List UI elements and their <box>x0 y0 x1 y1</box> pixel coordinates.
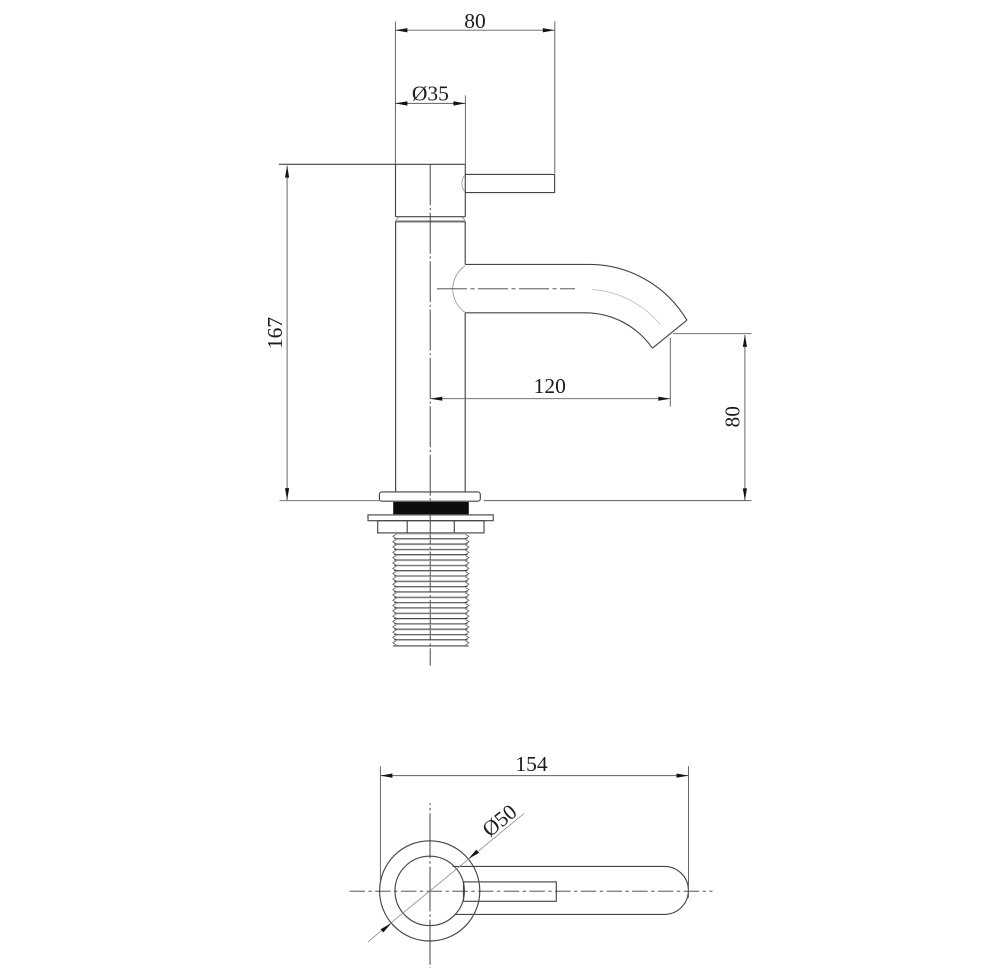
svg-text:154: 154 <box>515 752 548 776</box>
svg-text:Ø50: Ø50 <box>478 800 522 842</box>
svg-text:167: 167 <box>263 317 287 350</box>
svg-text:80: 80 <box>721 406 745 428</box>
svg-text:Ø35: Ø35 <box>412 81 449 105</box>
svg-text:120: 120 <box>534 374 566 398</box>
svg-text:80: 80 <box>464 9 486 33</box>
